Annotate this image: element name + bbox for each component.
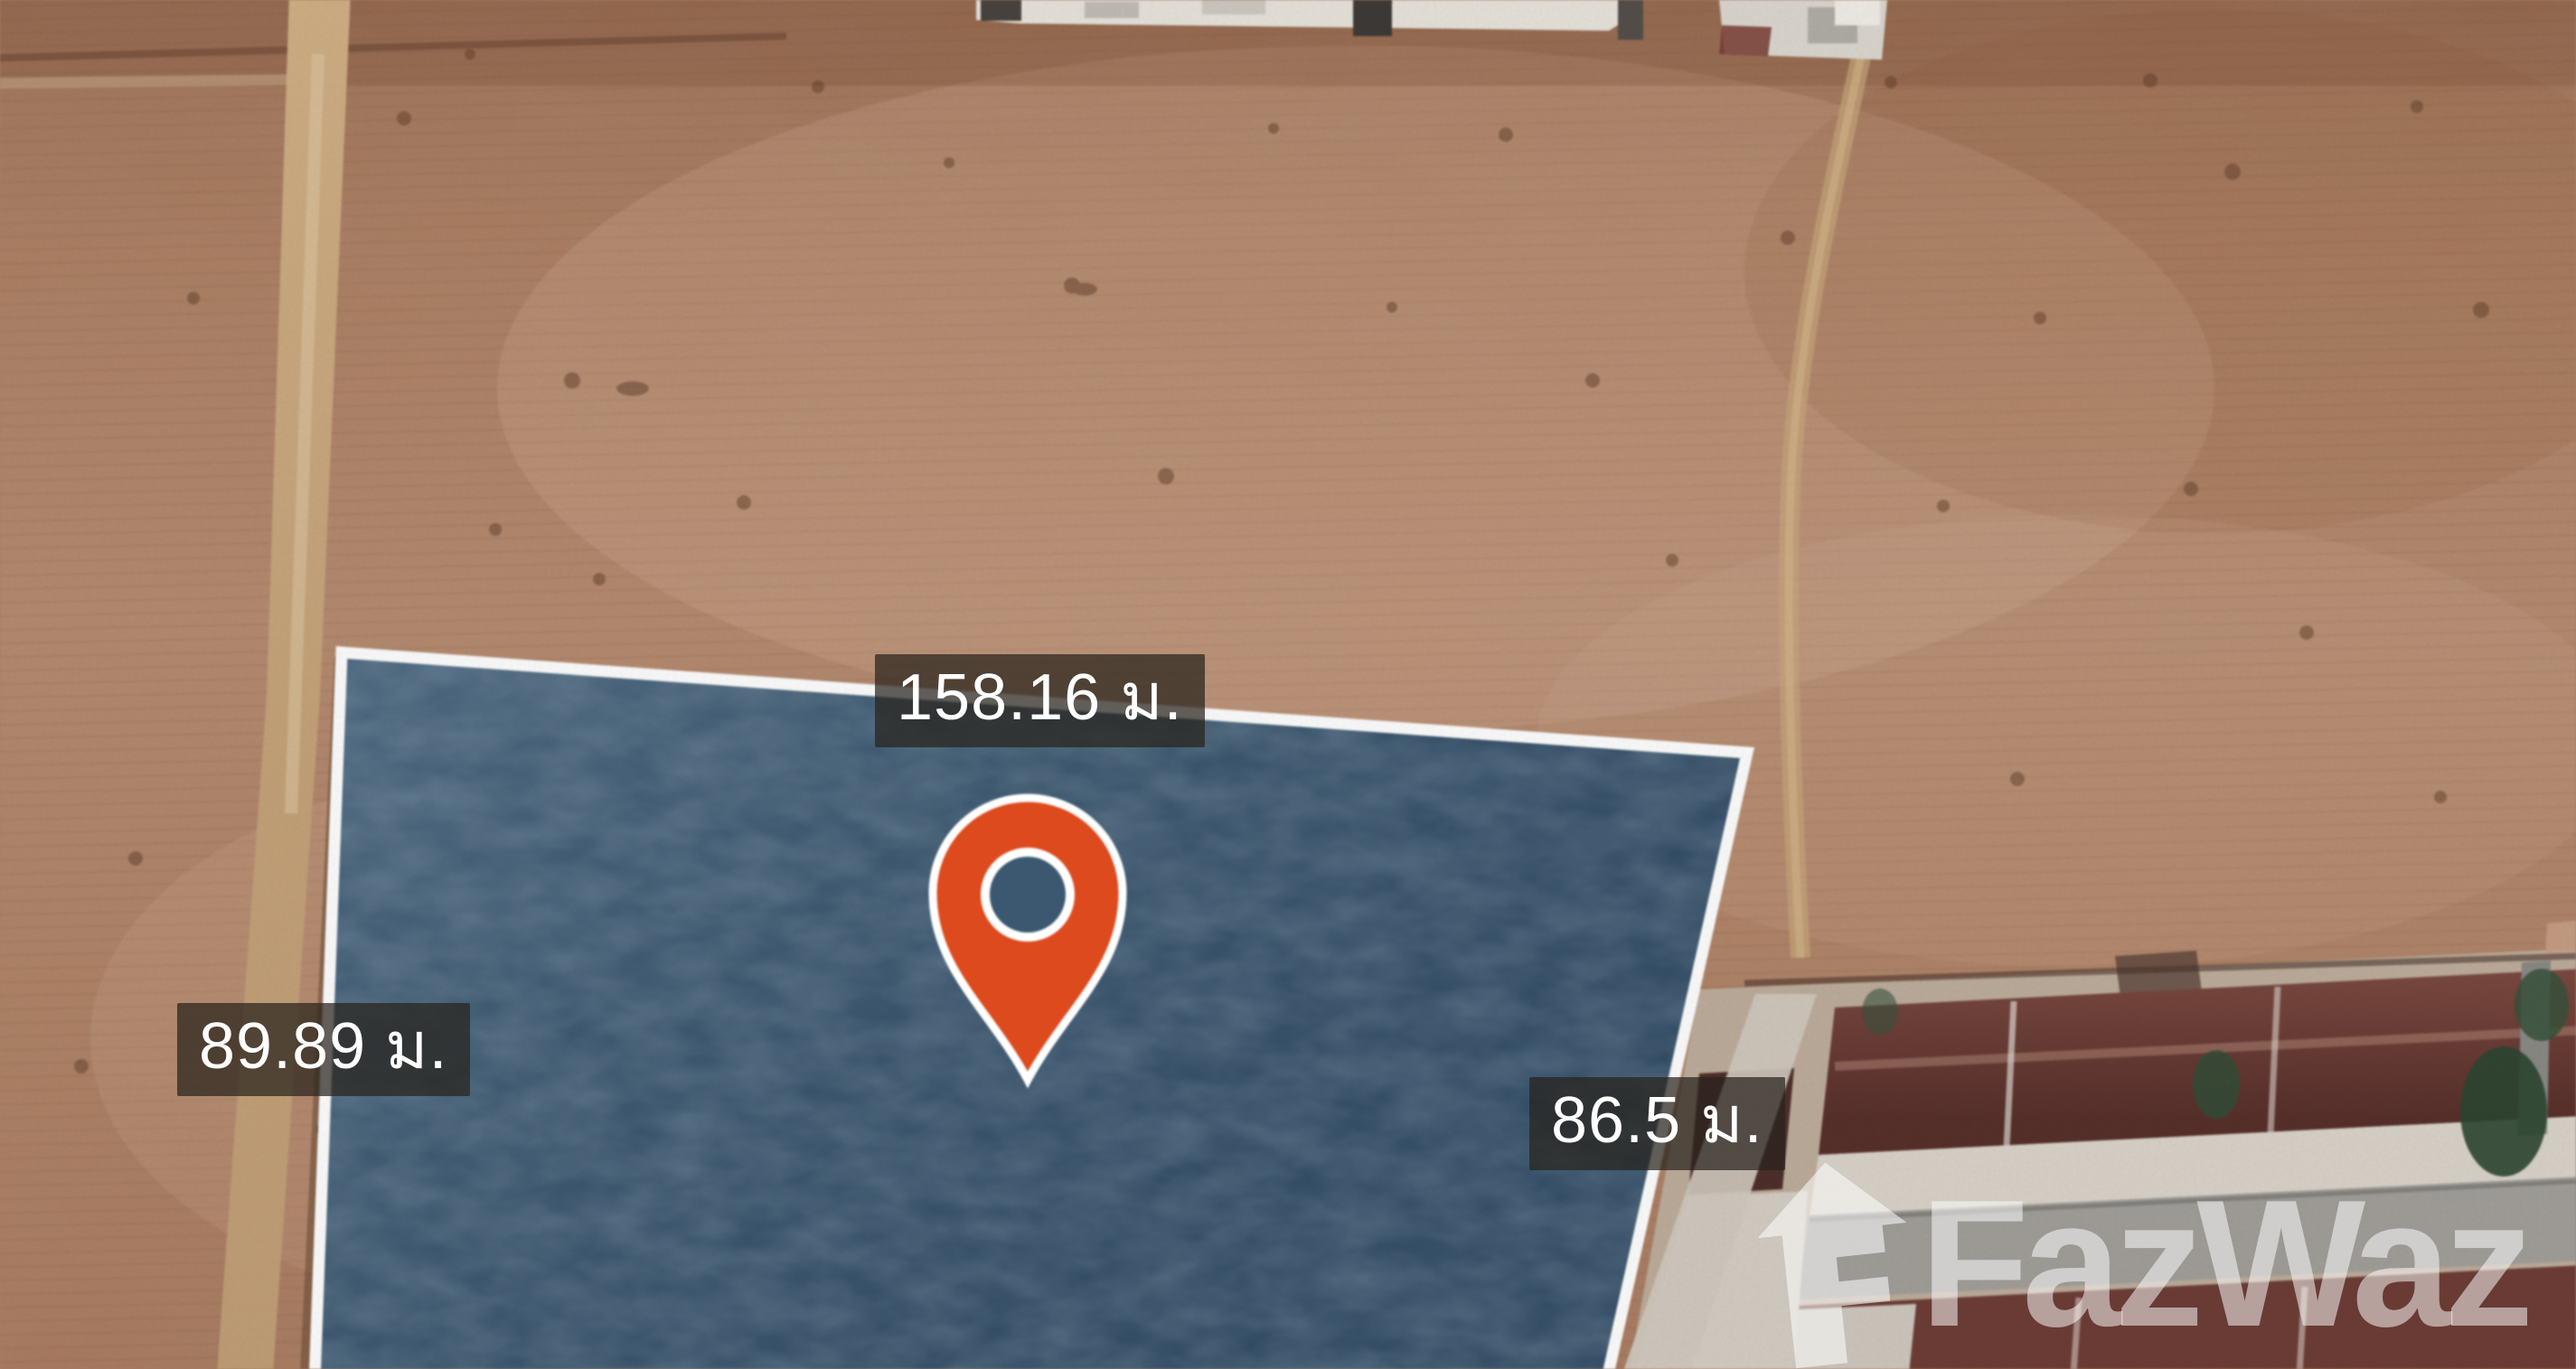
watermark-brand-text: FazWaz bbox=[1920, 1159, 2526, 1369]
dimension-label-top: 158.16 ม. bbox=[875, 654, 1205, 747]
brand-watermark: FazWaz bbox=[1761, 1159, 2533, 1369]
satellite-map: 158.16 ม. 89.89 ม. 86.5 ม. FazWaz bbox=[0, 0, 2576, 1369]
dimension-label-right: 86.5 ม. bbox=[1529, 1077, 1785, 1170]
house-icon bbox=[1751, 1155, 1922, 1369]
dimension-label-left: 89.89 ม. bbox=[177, 1003, 470, 1096]
